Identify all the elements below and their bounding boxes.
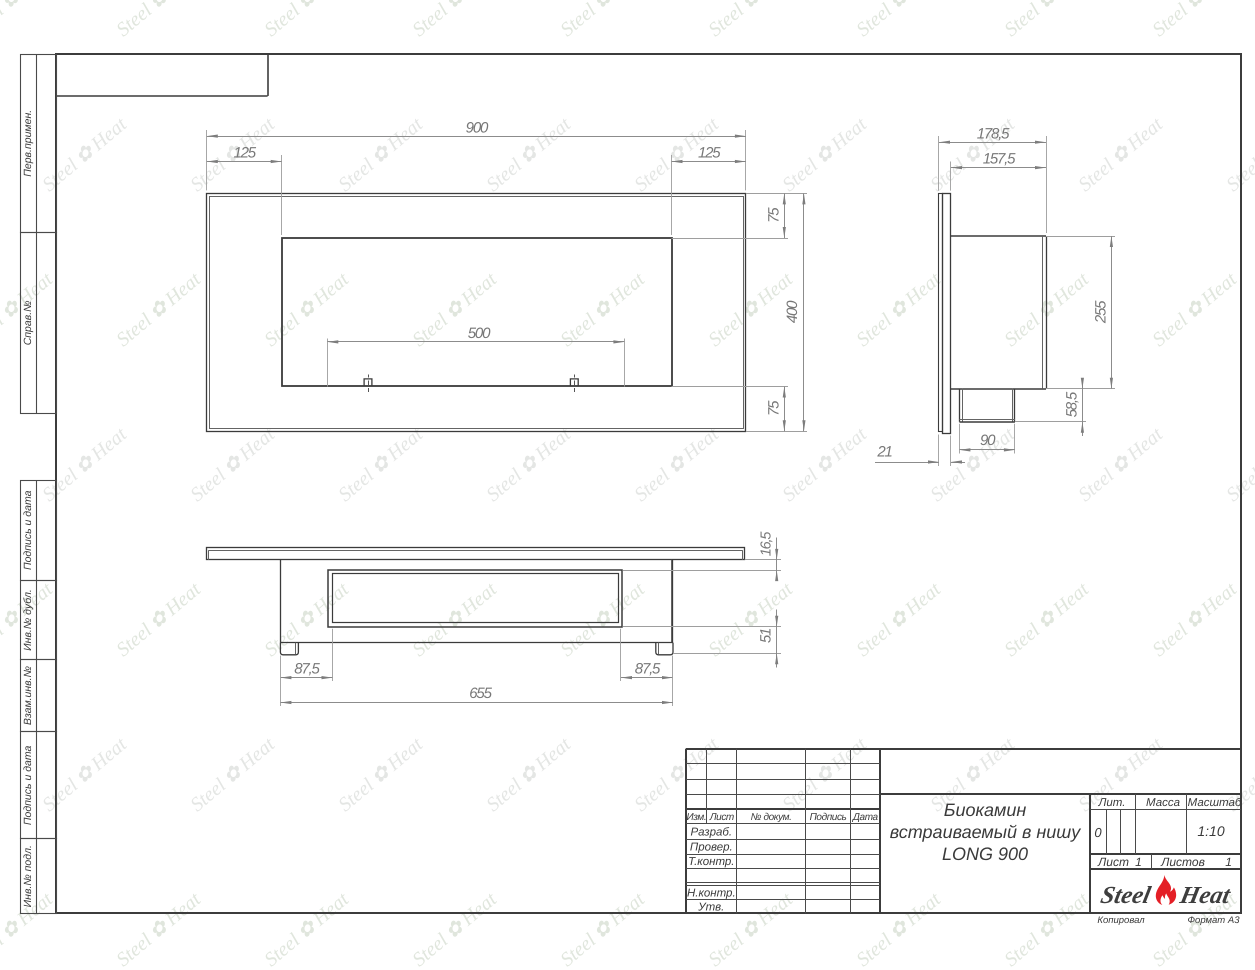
svg-text:Подпись: Подпись	[810, 812, 847, 823]
svg-text:75: 75	[765, 400, 782, 416]
svg-text:Перв.примен.: Перв.примен.	[22, 110, 34, 177]
svg-text:Формат А3: Формат А3	[1188, 915, 1241, 926]
svg-text:Инв.№ дубл.: Инв.№ дубл.	[22, 589, 34, 651]
svg-text:125: 125	[233, 145, 256, 162]
svg-text:16,5: 16,5	[758, 531, 774, 557]
svg-text:655: 655	[469, 685, 492, 702]
svg-text:Инв.№ подл.: Инв.№ подл.	[22, 845, 34, 907]
svg-text:Копировал: Копировал	[1097, 915, 1145, 926]
svg-text:21: 21	[876, 444, 892, 461]
svg-text:Взам.инв.№: Взам.инв.№	[22, 666, 34, 725]
svg-text:№ докум.: № докум.	[751, 812, 792, 823]
svg-text:Лист: Лист	[1097, 855, 1129, 869]
svg-text:Справ.№: Справ.№	[22, 300, 34, 345]
svg-text:75: 75	[765, 207, 782, 223]
svg-text:Подпись и дата: Подпись и дата	[22, 746, 34, 826]
svg-text:1: 1	[1135, 855, 1142, 869]
svg-text:51: 51	[757, 628, 774, 643]
svg-text:125: 125	[698, 145, 721, 162]
svg-text:Утв.: Утв.	[697, 901, 724, 913]
svg-text:58,5: 58,5	[1064, 391, 1081, 417]
svg-text:Провер.: Провер.	[690, 841, 733, 853]
svg-text:400: 400	[784, 300, 801, 323]
svg-text:Масштаб: Масштаб	[1188, 797, 1242, 809]
svg-text:87,5: 87,5	[635, 661, 661, 678]
svg-text:157,5: 157,5	[983, 150, 1016, 167]
svg-text:Биокамин: Биокамин	[944, 800, 1027, 820]
svg-text:87,5: 87,5	[294, 661, 320, 678]
svg-text:1: 1	[1225, 855, 1232, 869]
svg-text:Изм.: Изм.	[687, 812, 707, 823]
svg-text:Лист: Лист	[709, 812, 734, 823]
svg-text:90: 90	[980, 432, 996, 449]
svg-text:Дата: Дата	[852, 812, 879, 823]
svg-text:Heat: Heat	[1177, 882, 1234, 909]
svg-text:Steel: Steel	[1098, 882, 1153, 909]
svg-text:Листов: Листов	[1160, 855, 1205, 869]
svg-text:Лит.: Лит.	[1098, 797, 1126, 809]
svg-text:встраиваемый в нишу: встраиваемый в нишу	[890, 822, 1081, 842]
svg-text:Масса: Масса	[1146, 797, 1180, 809]
svg-text:0: 0	[1094, 825, 1102, 840]
svg-text:1:10: 1:10	[1197, 823, 1224, 839]
svg-text:255: 255	[1093, 300, 1110, 324]
svg-text:900: 900	[466, 119, 489, 136]
svg-text:Подпись и дата: Подпись и дата	[22, 490, 34, 570]
svg-text:178,5: 178,5	[977, 125, 1010, 142]
svg-text:Н.контр.: Н.контр.	[687, 887, 736, 899]
svg-text:Т.контр.: Т.контр.	[688, 856, 734, 868]
svg-text:500: 500	[468, 325, 491, 342]
svg-text:Разраб.: Разраб.	[690, 827, 732, 839]
svg-text:LONG 900: LONG 900	[942, 844, 1028, 864]
